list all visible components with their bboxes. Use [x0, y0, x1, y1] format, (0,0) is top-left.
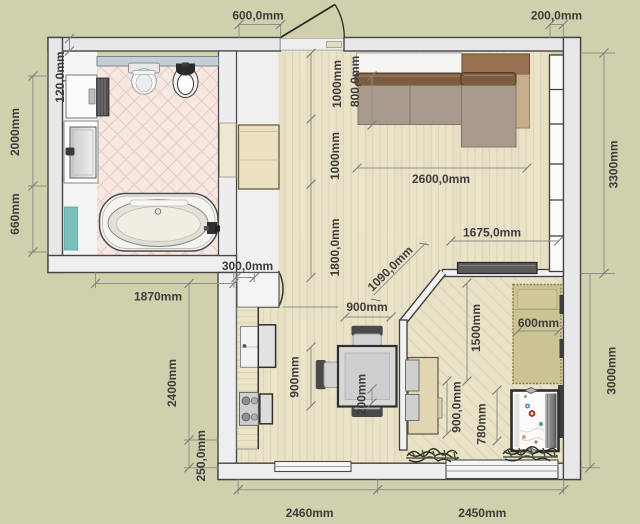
- svg-text:1000mm: 1000mm: [330, 60, 344, 108]
- svg-text:3000mm: 3000mm: [605, 347, 619, 395]
- svg-text:900,0mm: 900,0mm: [450, 381, 464, 432]
- svg-text:1675,0mm: 1675,0mm: [463, 226, 521, 240]
- svg-text:200mm: 200mm: [355, 374, 369, 415]
- svg-text:800,0mm: 800,0mm: [348, 56, 362, 107]
- svg-text:2000mm: 2000mm: [8, 108, 22, 156]
- svg-text:250,0mm: 250,0mm: [194, 430, 208, 481]
- svg-text:200,0mm: 200,0mm: [531, 9, 582, 23]
- svg-text:2400mm: 2400mm: [165, 359, 179, 407]
- svg-text:1870mm: 1870mm: [134, 290, 182, 304]
- svg-text:1000mm: 1000mm: [328, 132, 342, 180]
- svg-text:900mm: 900mm: [346, 300, 387, 314]
- svg-text:600,0mm: 600,0mm: [232, 9, 283, 23]
- svg-text:2450mm: 2450mm: [458, 506, 506, 520]
- svg-text:900mm: 900mm: [288, 356, 302, 397]
- svg-text:660mm: 660mm: [8, 193, 22, 234]
- svg-text:2600,0mm: 2600,0mm: [412, 172, 470, 186]
- svg-text:1800,0mm: 1800,0mm: [328, 218, 342, 276]
- svg-text:2460mm: 2460mm: [286, 506, 334, 520]
- svg-text:780mm: 780mm: [475, 403, 489, 444]
- svg-text:120,0mm: 120,0mm: [53, 51, 67, 102]
- svg-text:3300mm: 3300mm: [607, 140, 621, 188]
- svg-text:1500mm: 1500mm: [469, 304, 483, 352]
- svg-text:300,0mm: 300,0mm: [222, 259, 273, 273]
- svg-text:600mm: 600mm: [518, 316, 559, 330]
